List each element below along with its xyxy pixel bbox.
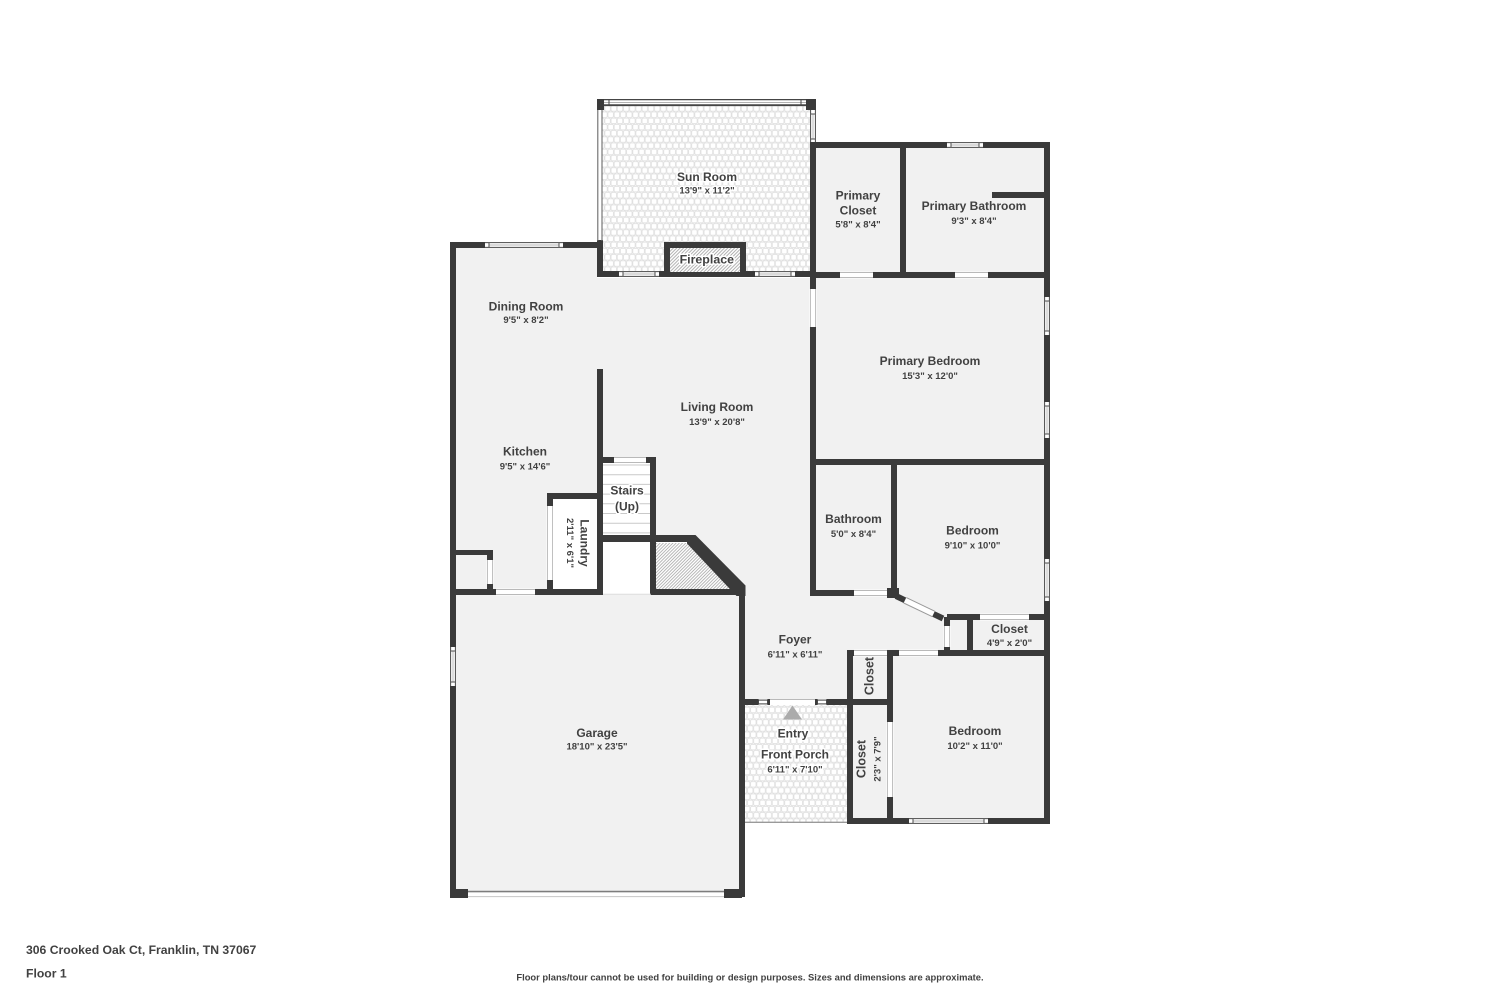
svg-text:5'8" x 8'4": 5'8" x 8'4" <box>835 220 880 231</box>
svg-text:Living Room: Living Room <box>681 400 754 414</box>
svg-text:Closet: Closet <box>855 739 869 778</box>
svg-text:Fireplace: Fireplace <box>680 253 735 267</box>
svg-text:Primary Bedroom: Primary Bedroom <box>880 354 981 368</box>
svg-text:Closet: Closet <box>840 204 877 218</box>
svg-text:Bathroom: Bathroom <box>825 512 882 526</box>
svg-text:(Up): (Up) <box>615 500 639 514</box>
svg-text:Closet: Closet <box>863 656 877 695</box>
svg-text:Front Porch: Front Porch <box>761 748 829 762</box>
svg-text:2'3" x 7'9": 2'3" x 7'9" <box>873 736 884 781</box>
svg-text:Closet: Closet <box>991 622 1028 636</box>
svg-text:13'9" x 20'8": 13'9" x 20'8" <box>689 417 745 428</box>
svg-text:9'3" x 8'4": 9'3" x 8'4" <box>951 216 996 227</box>
svg-text:Stairs: Stairs <box>610 484 644 498</box>
svg-text:Primary Bathroom: Primary Bathroom <box>922 199 1027 213</box>
svg-text:9'5" x 14'6": 9'5" x 14'6" <box>500 462 551 473</box>
svg-text:13'9" x 11'2": 13'9" x 11'2" <box>679 186 734 197</box>
svg-text:Laundry: Laundry <box>578 519 592 567</box>
svg-text:4'9" x 2'0": 4'9" x 2'0" <box>987 638 1032 649</box>
svg-text:Entry: Entry <box>778 727 809 741</box>
svg-text:306 Crooked Oak Ct, Franklin,: 306 Crooked Oak Ct, Franklin, TN 37067 <box>26 943 257 957</box>
svg-text:Floor plans/tour cannot be use: Floor plans/tour cannot be used for buil… <box>516 971 983 982</box>
svg-text:5'0" x 8'4": 5'0" x 8'4" <box>831 529 876 540</box>
svg-text:18'10" x 23'5": 18'10" x 23'5" <box>566 742 627 753</box>
svg-text:Bedroom: Bedroom <box>946 524 999 538</box>
svg-text:Kitchen: Kitchen <box>503 445 547 459</box>
svg-text:Floor 1: Floor 1 <box>26 967 67 981</box>
svg-text:6'11" x 6'11": 6'11" x 6'11" <box>768 650 823 661</box>
svg-text:Dining Room: Dining Room <box>489 300 564 314</box>
svg-text:9'10" x 10'0": 9'10" x 10'0" <box>945 541 1001 552</box>
svg-text:2'11" x 6'1": 2'11" x 6'1" <box>564 518 575 568</box>
svg-text:Sun Room: Sun Room <box>677 170 737 184</box>
svg-text:6'11" x 7'10": 6'11" x 7'10" <box>767 765 822 776</box>
svg-text:10'2" x 11'0": 10'2" x 11'0" <box>947 741 1002 752</box>
svg-text:Primary: Primary <box>836 189 881 203</box>
svg-text:15'3" x 12'0": 15'3" x 12'0" <box>902 371 958 382</box>
svg-text:Garage: Garage <box>576 726 618 740</box>
svg-text:Bedroom: Bedroom <box>949 724 1002 738</box>
svg-text:9'5" x 8'2": 9'5" x 8'2" <box>503 315 548 326</box>
svg-text:Foyer: Foyer <box>779 633 812 647</box>
